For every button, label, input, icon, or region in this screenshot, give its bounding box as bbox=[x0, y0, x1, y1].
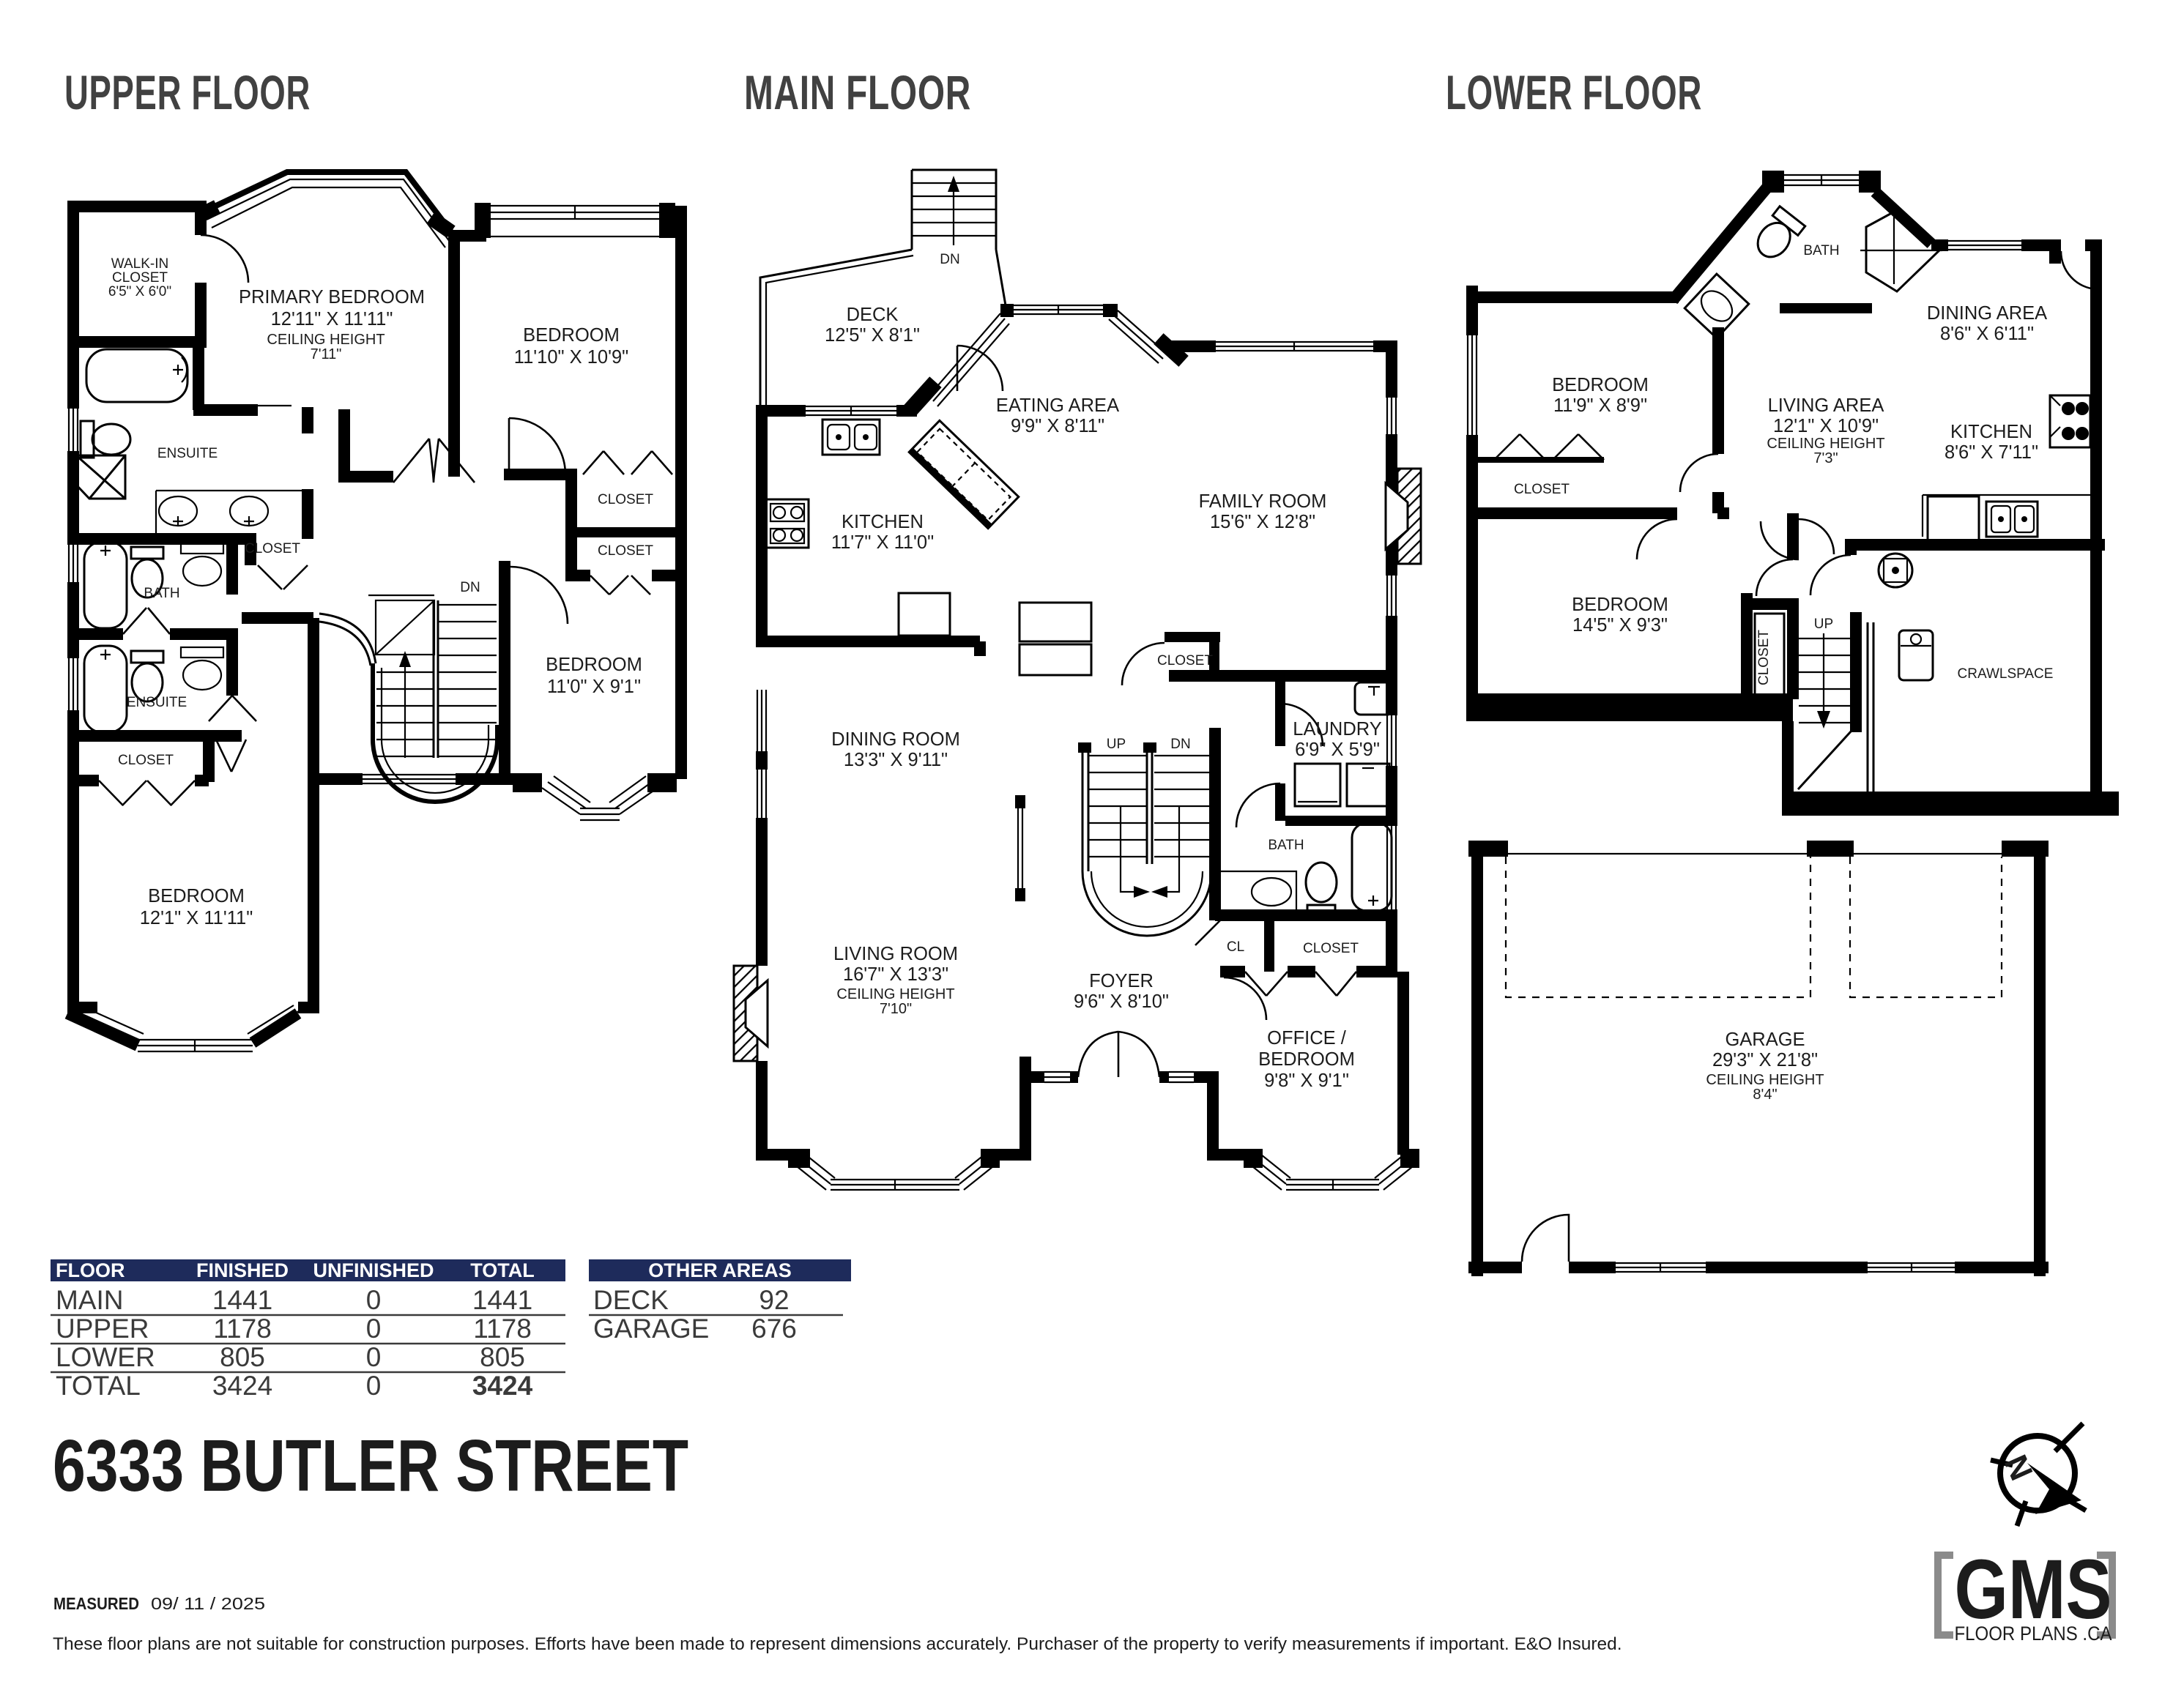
svg-text:0: 0 bbox=[366, 1342, 382, 1372]
svg-text:9'6" X 8'10": 9'6" X 8'10" bbox=[1074, 991, 1169, 1012]
svg-text:FOYER: FOYER bbox=[1089, 971, 1154, 991]
svg-text:FAMILY ROOM: FAMILY ROOM bbox=[1199, 491, 1327, 512]
svg-text:CEILING HEIGHT: CEILING HEIGHT bbox=[267, 332, 385, 348]
svg-text:MAIN FLOOR: MAIN FLOOR bbox=[744, 65, 971, 119]
svg-text:LIVING AREA: LIVING AREA bbox=[1768, 395, 1884, 416]
svg-text:CRAWLSPACE: CRAWLSPACE bbox=[1958, 666, 2054, 682]
svg-text:BATH: BATH bbox=[1803, 243, 1839, 258]
svg-text:OTHER AREAS: OTHER AREAS bbox=[648, 1259, 792, 1281]
svg-text:9'8" X 9'1": 9'8" X 9'1" bbox=[1264, 1070, 1349, 1091]
svg-text:11'7" X 11'0": 11'7" X 11'0" bbox=[831, 532, 934, 553]
svg-text:MAIN: MAIN bbox=[56, 1285, 124, 1315]
svg-text:TOTAL: TOTAL bbox=[470, 1259, 535, 1281]
svg-text:CL: CL bbox=[1227, 939, 1244, 955]
svg-text:6'5" X 6'0": 6'5" X 6'0" bbox=[108, 284, 171, 299]
svg-text:BEDROOM: BEDROOM bbox=[523, 325, 620, 346]
svg-text:1178: 1178 bbox=[473, 1314, 532, 1344]
svg-text:14'5" X 9'3": 14'5" X 9'3" bbox=[1572, 615, 1668, 636]
svg-text:CEILING HEIGHT: CEILING HEIGHT bbox=[836, 986, 954, 1002]
svg-text:UP: UP bbox=[1814, 617, 1833, 632]
svg-text:0: 0 bbox=[366, 1371, 382, 1401]
svg-text:15'6" X 12'8": 15'6" X 12'8" bbox=[1210, 512, 1315, 532]
svg-text:BATH: BATH bbox=[144, 586, 179, 601]
svg-text:KITCHEN: KITCHEN bbox=[1950, 422, 2032, 442]
svg-text:CLOSET: CLOSET bbox=[245, 541, 300, 556]
svg-text:805: 805 bbox=[220, 1342, 265, 1372]
svg-text:BATH: BATH bbox=[1268, 838, 1304, 853]
svg-text:LIVING ROOM: LIVING ROOM bbox=[833, 944, 958, 964]
svg-text:LOWER FLOOR: LOWER FLOOR bbox=[1446, 65, 1702, 119]
svg-text:29'3" X 21'8": 29'3" X 21'8" bbox=[1712, 1050, 1818, 1070]
svg-text:CLOSET: CLOSET bbox=[1514, 482, 1570, 497]
svg-text:FLOOR: FLOOR bbox=[56, 1259, 125, 1281]
svg-text:CLOSET: CLOSET bbox=[598, 492, 653, 507]
svg-text:DECK: DECK bbox=[847, 305, 899, 325]
svg-text:12'5" X 8'1": 12'5" X 8'1" bbox=[825, 325, 920, 346]
svg-text:CLOSET: CLOSET bbox=[118, 753, 174, 768]
svg-text:12'1" X 10'9": 12'1" X 10'9" bbox=[1773, 416, 1879, 436]
svg-text:0: 0 bbox=[366, 1285, 382, 1315]
svg-text:BEDROOM: BEDROOM bbox=[546, 655, 642, 675]
svg-text:CLOSET: CLOSET bbox=[1303, 941, 1359, 956]
svg-text:16'7" X 13'3": 16'7" X 13'3" bbox=[843, 964, 948, 985]
svg-text:KITCHEN: KITCHEN bbox=[842, 512, 924, 532]
svg-text:WALK-IN: WALK-IN bbox=[111, 256, 168, 272]
svg-text:92: 92 bbox=[759, 1285, 789, 1315]
svg-text:OFFICE /: OFFICE / bbox=[1267, 1028, 1347, 1049]
svg-text:BEDROOM: BEDROOM bbox=[1552, 375, 1649, 395]
svg-text:6333 BUTLER STREET: 6333 BUTLER STREET bbox=[53, 1425, 688, 1507]
svg-text:EATING AREA: EATING AREA bbox=[996, 395, 1119, 416]
svg-text:1441: 1441 bbox=[212, 1285, 272, 1315]
svg-text:1178: 1178 bbox=[213, 1314, 272, 1344]
svg-text:0: 0 bbox=[366, 1314, 382, 1344]
svg-text:DINING ROOM: DINING ROOM bbox=[831, 729, 960, 750]
svg-text:11'9" X 8'9": 11'9" X 8'9" bbox=[1553, 395, 1647, 416]
svg-text:DINING AREA: DINING AREA bbox=[1927, 303, 2047, 324]
svg-text:8'6" X 7'11": 8'6" X 7'11" bbox=[1945, 442, 2038, 463]
svg-text:FINISHED: FINISHED bbox=[196, 1259, 289, 1281]
svg-text:7'10": 7'10" bbox=[880, 1001, 912, 1017]
svg-text:UP: UP bbox=[1107, 737, 1126, 752]
svg-text:LAUNDRY: LAUNDRY bbox=[1293, 719, 1381, 740]
svg-text:CLOSET: CLOSET bbox=[1756, 630, 1772, 685]
svg-text:DECK: DECK bbox=[593, 1285, 669, 1315]
svg-text:DN: DN bbox=[1170, 737, 1190, 752]
svg-text:MEASURED: MEASURED bbox=[53, 1594, 139, 1613]
svg-text:7'11": 7'11" bbox=[311, 346, 342, 362]
svg-text:LOWER: LOWER bbox=[56, 1342, 155, 1372]
svg-text:DN: DN bbox=[940, 252, 959, 267]
svg-text:GARAGE: GARAGE bbox=[1725, 1029, 1805, 1050]
svg-text:CLOSET: CLOSET bbox=[598, 543, 653, 559]
svg-text:1441: 1441 bbox=[472, 1285, 532, 1315]
svg-text:8'6" X 6'11": 8'6" X 6'11" bbox=[1940, 324, 2034, 344]
svg-text:ENSUITE: ENSUITE bbox=[127, 695, 187, 710]
svg-text:UPPER: UPPER bbox=[56, 1314, 149, 1344]
svg-text:UNFINISHED: UNFINISHED bbox=[313, 1259, 434, 1281]
svg-text:805: 805 bbox=[480, 1342, 525, 1372]
svg-text:BEDROOM: BEDROOM bbox=[1572, 595, 1668, 615]
svg-text:UPPER FLOOR: UPPER FLOOR bbox=[64, 65, 311, 119]
svg-text:8'4": 8'4" bbox=[1753, 1087, 1777, 1103]
svg-text:09/ 11 / 2025: 09/ 11 / 2025 bbox=[151, 1594, 265, 1613]
svg-text:676: 676 bbox=[751, 1314, 797, 1344]
svg-text:3424: 3424 bbox=[472, 1371, 533, 1401]
svg-text:11'10" X 10'9": 11'10" X 10'9" bbox=[514, 347, 628, 368]
svg-text:FLOOR PLANS .CA: FLOOR PLANS .CA bbox=[1955, 1623, 2112, 1645]
svg-text:GARAGE: GARAGE bbox=[593, 1314, 709, 1344]
svg-text:BEDROOM: BEDROOM bbox=[1258, 1049, 1355, 1070]
svg-text:TOTAL: TOTAL bbox=[56, 1371, 141, 1401]
svg-text:These floor plans are not suit: These floor plans are not suitable for c… bbox=[53, 1634, 1622, 1654]
svg-text:9'9" X 8'11": 9'9" X 8'11" bbox=[1011, 416, 1104, 436]
svg-text:12'11" X 11'11": 12'11" X 11'11" bbox=[271, 309, 393, 329]
svg-text:DN: DN bbox=[460, 580, 480, 595]
svg-text:BEDROOM: BEDROOM bbox=[148, 886, 245, 906]
svg-text:3424: 3424 bbox=[212, 1371, 272, 1401]
svg-text:CLOSET: CLOSET bbox=[112, 270, 168, 286]
svg-text:13'3" X 9'11": 13'3" X 9'11" bbox=[844, 750, 948, 770]
svg-text:ENSUITE: ENSUITE bbox=[157, 446, 218, 461]
svg-text:7'3": 7'3" bbox=[1813, 450, 1838, 466]
svg-text:CLOSET: CLOSET bbox=[1157, 653, 1213, 669]
svg-text:PRIMARY BEDROOM: PRIMARY BEDROOM bbox=[239, 287, 425, 308]
svg-text:12'1" X 11'11": 12'1" X 11'11" bbox=[140, 908, 253, 928]
svg-text:CEILING HEIGHT: CEILING HEIGHT bbox=[1706, 1072, 1824, 1088]
svg-text:CEILING HEIGHT: CEILING HEIGHT bbox=[1767, 436, 1884, 452]
svg-text:11'0" X 9'1": 11'0" X 9'1" bbox=[547, 677, 641, 697]
svg-text:6'9" X 5'9": 6'9" X 5'9" bbox=[1295, 740, 1380, 760]
